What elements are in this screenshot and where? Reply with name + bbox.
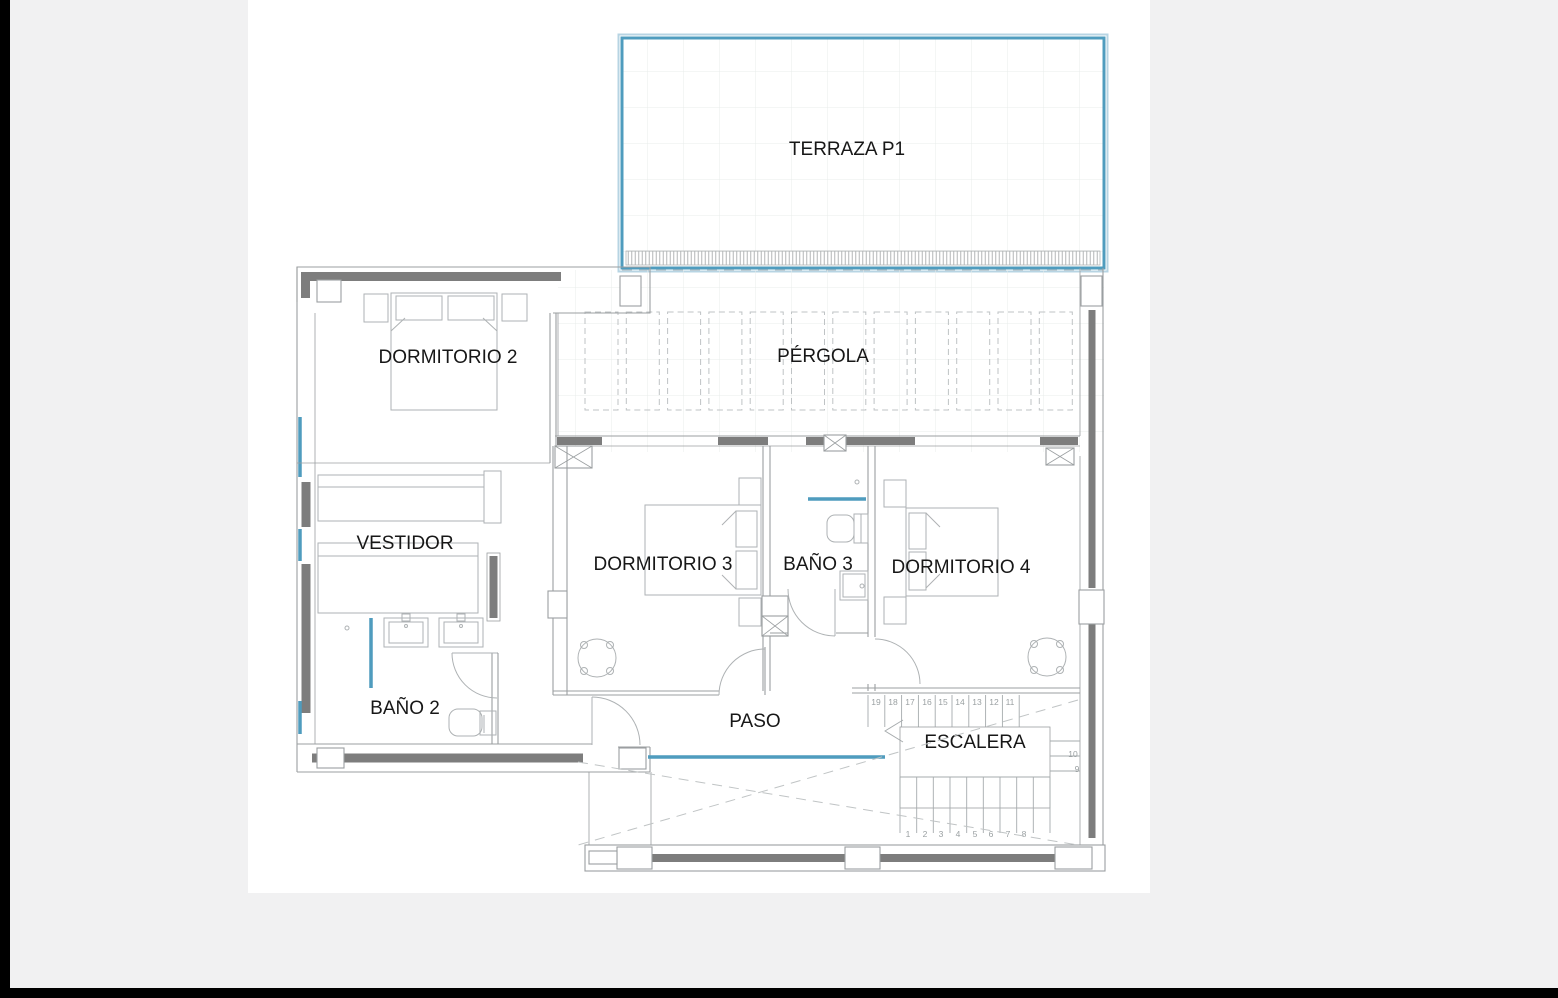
stair-step-number: 16 — [922, 697, 932, 707]
terraza-decking-hatch — [626, 251, 1100, 265]
stair-step-number: 17 — [905, 697, 915, 707]
room-label-dormitorio4: DORMITORIO 4 — [892, 557, 1031, 578]
room-label-bano2: BAÑO 2 — [370, 697, 440, 719]
stair-step-number: 2 — [923, 829, 928, 839]
room-label-dormitorio3: DORMITORIO 3 — [594, 554, 733, 575]
room-label-escalera: ESCALERA — [924, 732, 1026, 753]
pillar-xbox-2 — [824, 435, 846, 451]
room-label-dormitorio2: DORMITORIO 2 — [379, 347, 518, 368]
room-terraza: TERRAZA P1 — [619, 35, 1108, 272]
pillar-xbox-3 — [1046, 448, 1074, 465]
room-label-terraza: TERRAZA P1 — [789, 139, 905, 160]
edge-bar-bottom — [0, 988, 1558, 998]
floor-plan-svg: TERRAZA P1 PÉRGOLA — [0, 0, 1558, 998]
pillar-xbox-1 — [555, 446, 592, 468]
stair-step-number: 19 — [871, 697, 881, 707]
edge-bar-left — [0, 0, 10, 998]
stair-step-number: 4 — [956, 829, 961, 839]
wardrobe-endcap — [484, 471, 501, 523]
stair-step-number: 3 — [939, 829, 944, 839]
stair-step-number: 10 — [1068, 749, 1078, 759]
wardrobe-pole — [490, 556, 498, 618]
stair-step-number: 11 — [1006, 697, 1015, 707]
stair-step-number: 5 — [973, 829, 978, 839]
room-label-vestidor: VESTIDOR — [356, 533, 453, 554]
room-label-paso: PASO — [729, 711, 780, 732]
stair-step-number: 14 — [955, 697, 965, 707]
stair-step-number: 18 — [888, 697, 898, 707]
stair-step-number: 12 — [989, 697, 999, 707]
stair-step-number: 7 — [1006, 829, 1011, 839]
stair-step-number: 1 — [906, 829, 911, 839]
room-label-bano3: BAÑO 3 — [783, 553, 853, 575]
stair-step-number: 9 — [1075, 764, 1080, 774]
screenshot-stage: TERRAZA P1 PÉRGOLA — [0, 0, 1558, 998]
stair-step-number: 13 — [972, 697, 982, 707]
stair-step-number: 15 — [938, 697, 948, 707]
room-label-pergola: PÉRGOLA — [777, 346, 869, 367]
stair-step-number: 8 — [1022, 829, 1027, 839]
